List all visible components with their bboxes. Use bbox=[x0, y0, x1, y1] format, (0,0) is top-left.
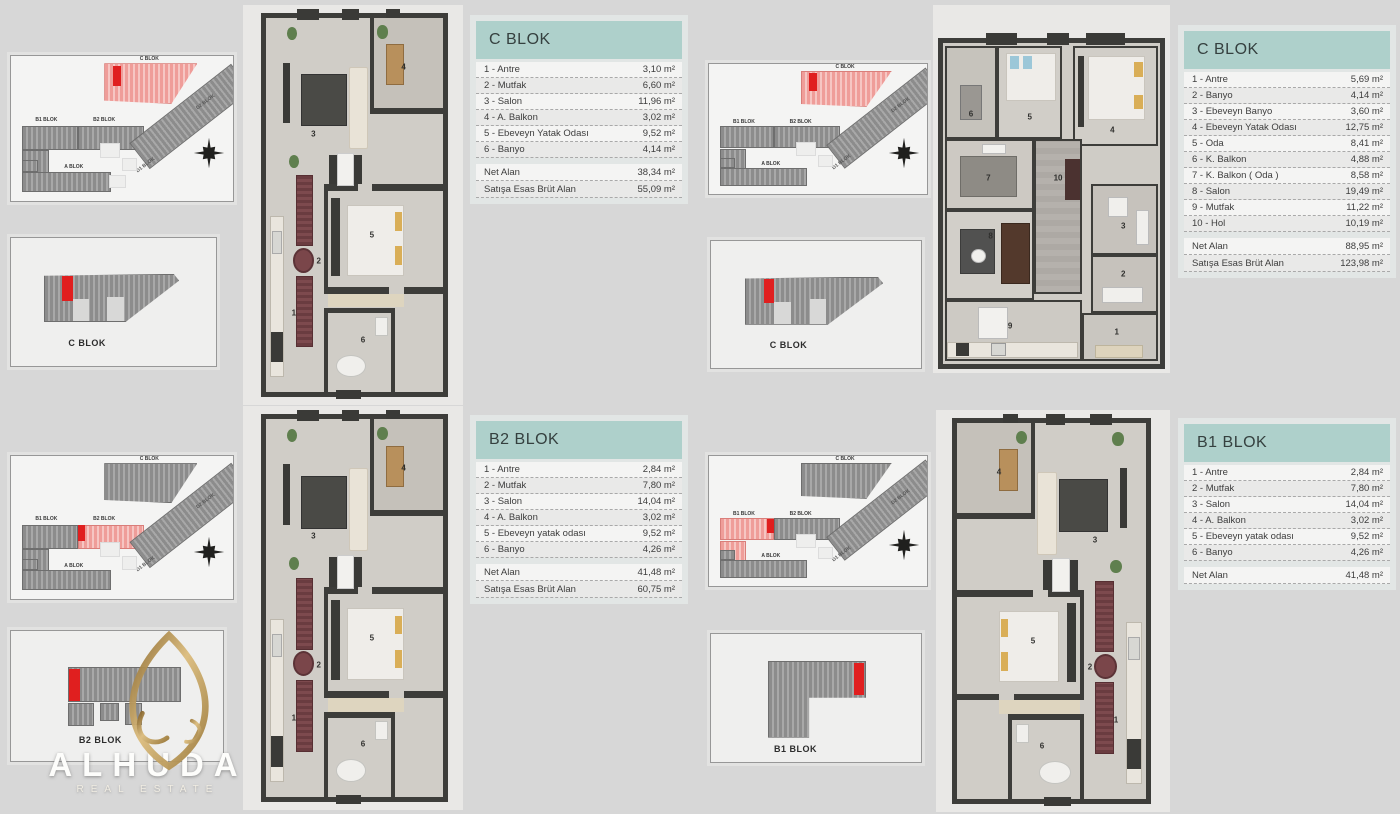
table-row: 3 - Salon14,04 m² bbox=[476, 494, 682, 510]
table-row: 1 - Antre3,10 m² bbox=[476, 62, 682, 78]
table-title: C BLOK bbox=[1184, 31, 1390, 69]
highlighted-unit bbox=[767, 519, 775, 533]
room-ebeveyn-banyo: 3 bbox=[1121, 222, 1125, 231]
room-banyo: 6 bbox=[361, 740, 365, 749]
table-row: Net Alan41,48 m² bbox=[476, 564, 682, 581]
highlighted-unit bbox=[113, 66, 121, 86]
floorplan-c-large: 1 2 3 4 5 6 7 8 9 10 bbox=[933, 5, 1170, 373]
table-row: 3 - Salon14,04 m² bbox=[1184, 497, 1390, 513]
table-c-blok-large: C BLOK 1 - Antre5,69 m²2 - Banyo4,14 m²3… bbox=[1178, 25, 1396, 278]
table-title: B2 BLOK bbox=[476, 421, 682, 459]
room-mutfak: 2 bbox=[316, 257, 320, 266]
room-antre: 1 bbox=[1115, 328, 1119, 337]
room-mutfak: 2 bbox=[316, 660, 320, 669]
room-mutfak: 2 bbox=[1087, 663, 1091, 672]
label-c-blok: C BLOK bbox=[140, 57, 159, 62]
compass-icon bbox=[888, 529, 920, 561]
table-row: 8 - Salon19,49 m² bbox=[1184, 184, 1390, 200]
detail-box-c-2: C BLOK bbox=[710, 240, 922, 369]
room-balkon: 4 bbox=[997, 467, 1001, 476]
room-banyo: 6 bbox=[1040, 742, 1044, 751]
table-body: 1 - Antre5,69 m²2 - Banyo4,14 m²3 - Ebev… bbox=[1184, 72, 1390, 232]
table-summary: Net Alan88,95 m²Satışa Esas Brüt Alan123… bbox=[1184, 238, 1390, 272]
table-row: 1 - Antre5,69 m² bbox=[1184, 72, 1390, 88]
room-salon: 3 bbox=[311, 532, 315, 541]
floorplan-c-small: 1 2 3 4 5 6 bbox=[243, 5, 463, 405]
site-block-a bbox=[22, 172, 111, 192]
highlighted-unit bbox=[78, 525, 86, 541]
table-row: Net Alan88,95 m² bbox=[1184, 238, 1390, 255]
room-hol: 10 bbox=[1054, 174, 1063, 183]
room-antre: 1 bbox=[292, 309, 296, 318]
site-block-b1 bbox=[22, 126, 78, 151]
table-row: 10 - Hol10,19 m² bbox=[1184, 216, 1390, 232]
compass-icon bbox=[193, 137, 225, 169]
detail-label-c: C BLOK bbox=[68, 338, 106, 348]
table-summary: Net Alan41,48 m² bbox=[1184, 567, 1390, 584]
table-row: 5 - Ebeveyn yatak odası9,52 m² bbox=[1184, 529, 1390, 545]
table-body: 1 - Antre2,84 m²2 - Mutfak7,80 m²3 - Sal… bbox=[1184, 465, 1390, 561]
room-yatak-odasi: 5 bbox=[370, 634, 374, 643]
room-salon: 3 bbox=[311, 129, 315, 138]
table-row: 3 - Ebeveyn Banyo3,60 m² bbox=[1184, 104, 1390, 120]
room-banyo: 2 bbox=[1121, 270, 1125, 279]
site-plan-c-top-center: C BLOK B1 BLOK B2 BLOK A BLOK D1 BLOK D2… bbox=[708, 63, 928, 195]
table-row: 1 - Antre2,84 m² bbox=[1184, 465, 1390, 481]
site-plan-b2: C BLOK B1 BLOK B2 BLOK A BLOK D1 BLOK D2… bbox=[10, 455, 234, 600]
detail-box-c-1: C BLOK bbox=[10, 237, 217, 367]
table-summary: Net Alan41,48 m²Satışa Esas Brüt Alan60,… bbox=[476, 564, 682, 598]
room-k-balkon-oda: 7 bbox=[986, 174, 990, 183]
table-row: Satışa Esas Brüt Alan123,98 m² bbox=[1184, 255, 1390, 272]
table-row: 6 - K. Balkon4,88 m² bbox=[1184, 152, 1390, 168]
table-row: 4 - A. Balkon3,02 m² bbox=[1184, 513, 1390, 529]
table-row: 4 - Ebeveyn Yatak Odası12,75 m² bbox=[1184, 120, 1390, 136]
table-row: 2 - Mutfak6,60 m² bbox=[476, 78, 682, 94]
room-salon: 3 bbox=[1093, 535, 1097, 544]
table-body: 1 - Antre3,10 m²2 - Mutfak6,60 m²3 - Sal… bbox=[476, 62, 682, 158]
site-block-a-stub bbox=[22, 160, 38, 172]
table-row: 1 - Antre2,84 m² bbox=[476, 462, 682, 478]
table-row: Satışa Esas Brüt Alan55,09 m² bbox=[476, 181, 682, 198]
table-title: B1 BLOK bbox=[1184, 424, 1390, 462]
highlighted-unit bbox=[69, 669, 80, 702]
room-antre: 1 bbox=[292, 713, 296, 722]
table-row: 9 - Mutfak11,22 m² bbox=[1184, 200, 1390, 216]
label-b1-blok: B1 BLOK bbox=[35, 118, 57, 123]
table-summary: Net Alan38,34 m²Satışa Esas Brüt Alan55,… bbox=[476, 164, 682, 198]
table-row: 6 - Banyo4,26 m² bbox=[1184, 545, 1390, 561]
table-row: 5 - Oda8,41 m² bbox=[1184, 136, 1390, 152]
room-salon: 8 bbox=[988, 231, 992, 240]
table-row: 4 - A. Balkon3,02 m² bbox=[476, 510, 682, 526]
highlighted-unit bbox=[809, 73, 817, 91]
room-banyo: 6 bbox=[361, 335, 365, 344]
room-k-balkon: 6 bbox=[969, 109, 973, 118]
logo-tagline: REAL ESTATE bbox=[48, 784, 248, 795]
table-row: 5 - Ebeveyn yatak odası9,52 m² bbox=[476, 526, 682, 542]
table-row: 4 - A. Balkon3,02 m² bbox=[476, 110, 682, 126]
room-oda: 5 bbox=[1028, 112, 1032, 121]
room-yatak-odasi: 5 bbox=[1031, 637, 1035, 646]
room-balkon: 4 bbox=[401, 62, 405, 71]
room-balkon: 4 bbox=[401, 464, 405, 473]
table-row: Net Alan41,48 m² bbox=[1184, 567, 1390, 584]
table-c-blok-small: C BLOK 1 - Antre3,10 m²2 - Mutfak6,60 m²… bbox=[470, 15, 688, 204]
alhuda-calligraphy-logo bbox=[88, 622, 250, 774]
table-row: Satışa Esas Brüt Alan60,75 m² bbox=[476, 581, 682, 598]
table-row: 2 - Mutfak7,80 m² bbox=[1184, 481, 1390, 497]
table-title: C BLOK bbox=[476, 21, 682, 59]
table-row: 2 - Banyo4,14 m² bbox=[1184, 88, 1390, 104]
site-plan-c-top-left: C BLOK B1 BLOK B2 BLOK A BLOK D1 BLOK D2… bbox=[10, 55, 234, 202]
compass-icon bbox=[193, 536, 225, 568]
highlighted-unit bbox=[854, 663, 865, 695]
detail-box-b1: B1 BLOK bbox=[710, 633, 922, 763]
brochure-page: C BLOK B1 BLOK B2 BLOK A BLOK D1 BLOK D2… bbox=[0, 0, 1400, 814]
table-row: 7 - K. Balkon ( Oda )8,58 m² bbox=[1184, 168, 1390, 184]
table-body: 1 - Antre2,84 m²2 - Mutfak7,80 m²3 - Sal… bbox=[476, 462, 682, 558]
label-b2-blok: B2 BLOK bbox=[93, 118, 115, 123]
compass-icon bbox=[888, 137, 920, 169]
table-row: 6 - Banyo4,26 m² bbox=[476, 542, 682, 558]
room-antre: 1 bbox=[1114, 716, 1118, 725]
table-row: Net Alan38,34 m² bbox=[476, 164, 682, 181]
room-yatak-odasi: 5 bbox=[370, 230, 374, 239]
table-row: 3 - Salon11,96 m² bbox=[476, 94, 682, 110]
table-row: 5 - Ebeveyn Yatak Odası9,52 m² bbox=[476, 126, 682, 142]
floorplan-b2: 1 2 3 4 5 6 bbox=[243, 406, 463, 810]
table-row: 2 - Mutfak7,80 m² bbox=[476, 478, 682, 494]
table-b1-blok: B1 BLOK 1 - Antre2,84 m²2 - Mutfak7,80 m… bbox=[1178, 418, 1396, 590]
room-mutfak: 9 bbox=[1008, 321, 1012, 330]
highlighted-unit bbox=[764, 279, 775, 303]
highlighted-unit bbox=[62, 276, 72, 300]
table-row: 6 - Banyo4,14 m² bbox=[476, 142, 682, 158]
table-b2-blok: B2 BLOK 1 - Antre2,84 m²2 - Mutfak7,80 m… bbox=[470, 415, 688, 604]
site-plan-b1: C BLOK B1 BLOK B2 BLOK A BLOK D1 BLOK D2… bbox=[708, 455, 928, 587]
label-a-blok: A BLOK bbox=[64, 165, 83, 170]
room-ebeveyn-yatak: 4 bbox=[1110, 125, 1114, 134]
floorplan-b1: 1 2 3 4 5 6 bbox=[936, 410, 1170, 812]
